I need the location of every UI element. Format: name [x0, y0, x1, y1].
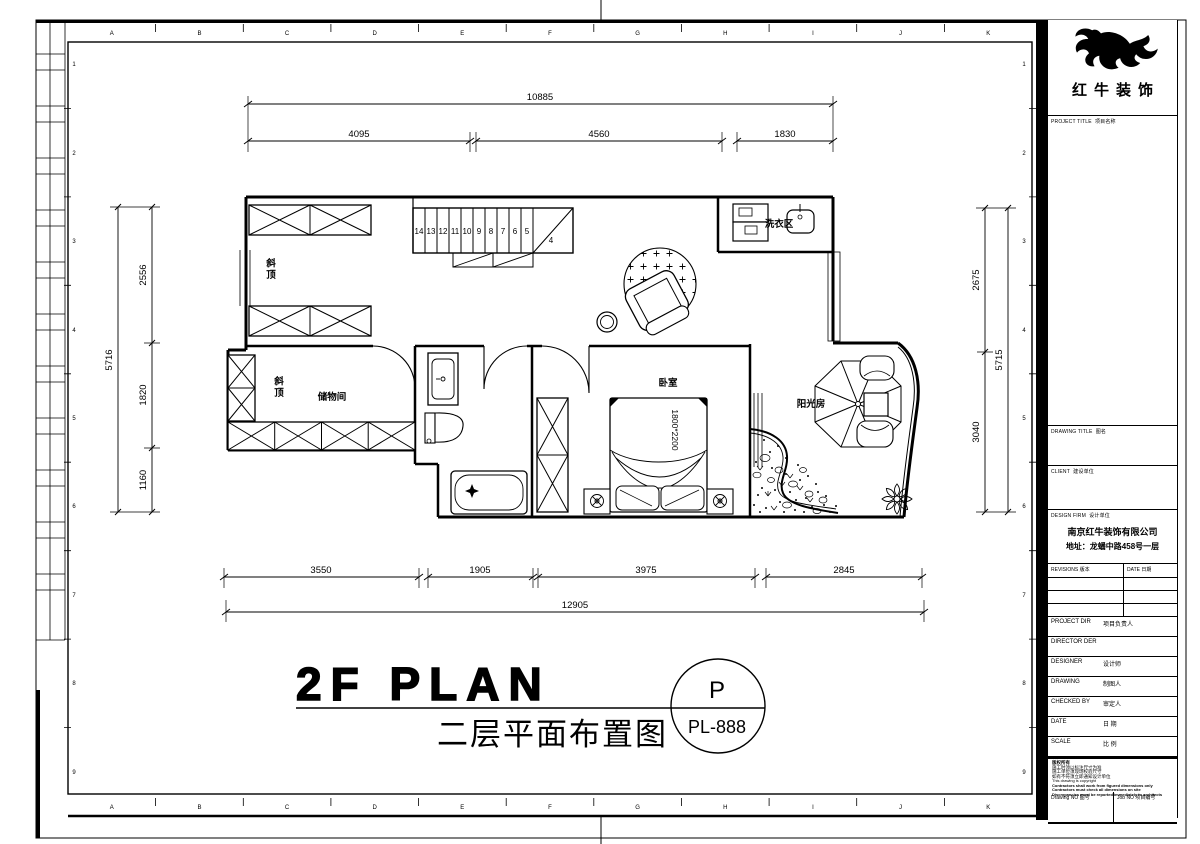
svg-text:A: A [110, 805, 114, 811]
svg-text:1: 1 [72, 62, 76, 68]
bathroom-fixtures [425, 353, 527, 514]
field-designer: DESIGNER设计师 [1048, 657, 1177, 677]
title-en: 2F PLAN [296, 658, 551, 710]
svg-text:1820: 1820 [138, 384, 149, 405]
stool [597, 312, 617, 332]
label-storage: 储物间 [318, 391, 347, 403]
svg-text:2: 2 [1022, 151, 1026, 157]
drawing-marker-circle [671, 659, 765, 753]
doors [373, 346, 589, 393]
svg-text:3: 3 [72, 239, 76, 245]
svg-text:13: 13 [427, 227, 436, 236]
fold-strip [36, 20, 65, 640]
plan-title: 2F PLAN 二层平面布置图 P PL-888 [296, 658, 765, 753]
drawing-no-label: Drawing NO [1051, 795, 1078, 801]
svg-text:11: 11 [451, 227, 460, 236]
drawing-number-row: Drawing NO 图号 Job NO 项目编号 [1048, 792, 1177, 824]
svg-text:14: 14 [415, 227, 424, 236]
drawing-title-cell: DRAWING TITLE 图名 [1048, 426, 1177, 466]
svg-text:6: 6 [1022, 504, 1026, 510]
svg-text:1160: 1160 [138, 470, 149, 490]
label-laundry: 洗衣区 [765, 218, 794, 230]
brand-logo-icon [1065, 24, 1161, 78]
svg-text:H: H [723, 805, 727, 811]
floor-plan: 1413 1211 109 87 65 4 [228, 197, 918, 517]
svg-text:6: 6 [513, 227, 518, 236]
svg-text:F: F [548, 31, 552, 37]
svg-text:I: I [812, 31, 814, 37]
svg-text:4: 4 [549, 236, 554, 245]
flower [882, 484, 912, 514]
svg-text:2675: 2675 [971, 269, 982, 290]
washer [733, 204, 768, 241]
grid-numbers-right: 12 34 56 78 9 [1022, 62, 1026, 776]
marker-code: PL-888 [688, 717, 746, 737]
dim-bottom-total: 12905 [562, 600, 588, 611]
label-bed-size: 1800*2200 [670, 409, 680, 450]
svg-text:F: F [548, 805, 552, 811]
svg-text:J: J [899, 805, 902, 811]
title-zh: 二层平面布置图 [437, 717, 668, 752]
toilet [425, 413, 463, 443]
svg-text:2: 2 [72, 151, 76, 157]
svg-text:B: B [197, 31, 201, 37]
revisions-row [1048, 591, 1177, 604]
client-cell: CLIENT 建设单位 [1048, 466, 1177, 510]
svg-text:B: B [197, 805, 201, 811]
cabinets [228, 205, 568, 512]
svg-text:6: 6 [72, 504, 76, 510]
titleblock-divider-bar [1036, 20, 1048, 820]
svg-text:7: 7 [1022, 593, 1026, 599]
label-sloped-ceiling-1: 斜顶 [264, 258, 275, 281]
title-block: 红牛装饰 PROJECT TITLE 项目名称 DRAWING TITLE 图名… [1048, 20, 1178, 818]
svg-text:3550: 3550 [310, 565, 331, 576]
bedroom-furniture [584, 398, 733, 514]
svg-text:3975: 3975 [635, 565, 656, 576]
svg-text:A: A [110, 31, 114, 37]
svg-text:8: 8 [1022, 681, 1026, 687]
field-checked-by: CHECKED BY审定人 [1048, 697, 1177, 717]
field-date: DATE日 期 [1048, 717, 1177, 737]
svg-text:D: D [373, 805, 378, 811]
dim-right-total: 5715 [994, 349, 1005, 370]
svg-text:3: 3 [1022, 239, 1026, 245]
label-bedroom: 卧室 [658, 377, 678, 389]
svg-text:I: I [812, 805, 814, 811]
sunroom-items [750, 356, 912, 514]
svg-text:G: G [635, 805, 640, 811]
copyright-notes: 版权所有 施工时须以标注尺寸为准 施工单位须现场校验尺寸 如有不符须立即通知设计… [1048, 757, 1177, 792]
fold-thick-mark [36, 690, 40, 838]
svg-text:7: 7 [501, 227, 506, 236]
dim-top-total: 10885 [527, 92, 553, 103]
project-title-label: PROJECT TITLE [1051, 119, 1092, 125]
svg-text:1905: 1905 [469, 565, 490, 576]
svg-text:9: 9 [1022, 770, 1026, 776]
svg-text:4: 4 [1022, 328, 1026, 334]
dim-left-total: 5716 [104, 349, 115, 370]
job-no-label: Job NO [1117, 795, 1134, 801]
company-address: 地址：龙蟠中路458号一层 [1048, 541, 1177, 552]
svg-text:4: 4 [72, 328, 76, 334]
drawing-title-label: DRAWING TITLE [1051, 429, 1093, 435]
svg-text:G: G [635, 31, 640, 37]
brand-name: 红牛装饰 [1048, 79, 1177, 100]
revisions-header: REVISIONS 版本 DATE 日期 [1048, 564, 1177, 578]
svg-text:H: H [723, 31, 727, 37]
svg-text:2556: 2556 [138, 264, 149, 285]
svg-text:K: K [986, 31, 990, 37]
svg-text:2845: 2845 [833, 565, 854, 576]
hall-furniture [597, 248, 696, 339]
client-label: CLIENT [1051, 469, 1070, 475]
svg-text:9: 9 [72, 770, 76, 776]
svg-text:4560: 4560 [588, 129, 609, 140]
svg-text:1830: 1830 [774, 129, 795, 140]
svg-text:10: 10 [463, 227, 472, 236]
label-sunroom: 阳光房 [797, 398, 826, 410]
design-firm-cell: DESIGN FIRM 设计单位 南京红牛装饰有限公司 地址：龙蟠中路458号一… [1048, 510, 1177, 564]
svg-text:D: D [373, 31, 378, 37]
company-name: 南京红牛装饰有限公司 [1048, 525, 1177, 538]
svg-text:K: K [986, 805, 990, 811]
marker-letter: P [709, 677, 725, 704]
svg-text:8: 8 [72, 681, 76, 687]
field-director: DIRECTOR DER [1048, 637, 1177, 657]
revisions-row [1048, 578, 1177, 591]
svg-text:1: 1 [1022, 62, 1026, 68]
svg-text:C: C [285, 31, 290, 37]
svg-text:E: E [460, 31, 464, 37]
svg-text:5: 5 [1022, 416, 1026, 422]
svg-text:E: E [460, 805, 464, 811]
svg-text:4095: 4095 [348, 129, 369, 140]
svg-text:8: 8 [489, 227, 494, 236]
revisions-row [1048, 604, 1177, 617]
label-sloped-ceiling-2: 斜顶 [272, 376, 283, 399]
svg-text:5: 5 [72, 416, 76, 422]
svg-text:5: 5 [525, 227, 530, 236]
svg-text:3040: 3040 [971, 421, 982, 442]
patio-table [864, 393, 888, 416]
svg-text:J: J [899, 31, 902, 37]
svg-text:7: 7 [72, 593, 76, 599]
svg-text:9: 9 [477, 227, 482, 236]
brand-logo-cell: 红牛装饰 [1048, 24, 1177, 116]
grid-letters-bottom: AB CD EF GH IJ K [110, 805, 990, 811]
field-project-dir: PROJECT DIR项目负责人 [1048, 617, 1177, 637]
field-scale: SCALE比 例 [1048, 737, 1177, 757]
garden-border [750, 429, 838, 513]
bathtub [451, 471, 527, 514]
project-title-cell: PROJECT TITLE 项目名称 [1048, 116, 1177, 426]
svg-text:12: 12 [439, 227, 448, 236]
svg-text:C: C [285, 805, 290, 811]
drawing-sheet: AB CD EF GH IJ K AB CD EF GH IJ K 12 34 … [0, 0, 1200, 844]
vanity-sink [428, 353, 458, 405]
design-firm-label: DESIGN FIRM [1051, 513, 1086, 519]
grid-letters-top: AB CD EF GH IJ K [110, 31, 990, 37]
field-drawing: DRAWING制图人 [1048, 677, 1177, 697]
grid-numbers-left: 12 34 56 78 9 [72, 62, 76, 776]
cad-linework: AB CD EF GH IJ K AB CD EF GH IJ K 12 34 … [0, 0, 1200, 844]
